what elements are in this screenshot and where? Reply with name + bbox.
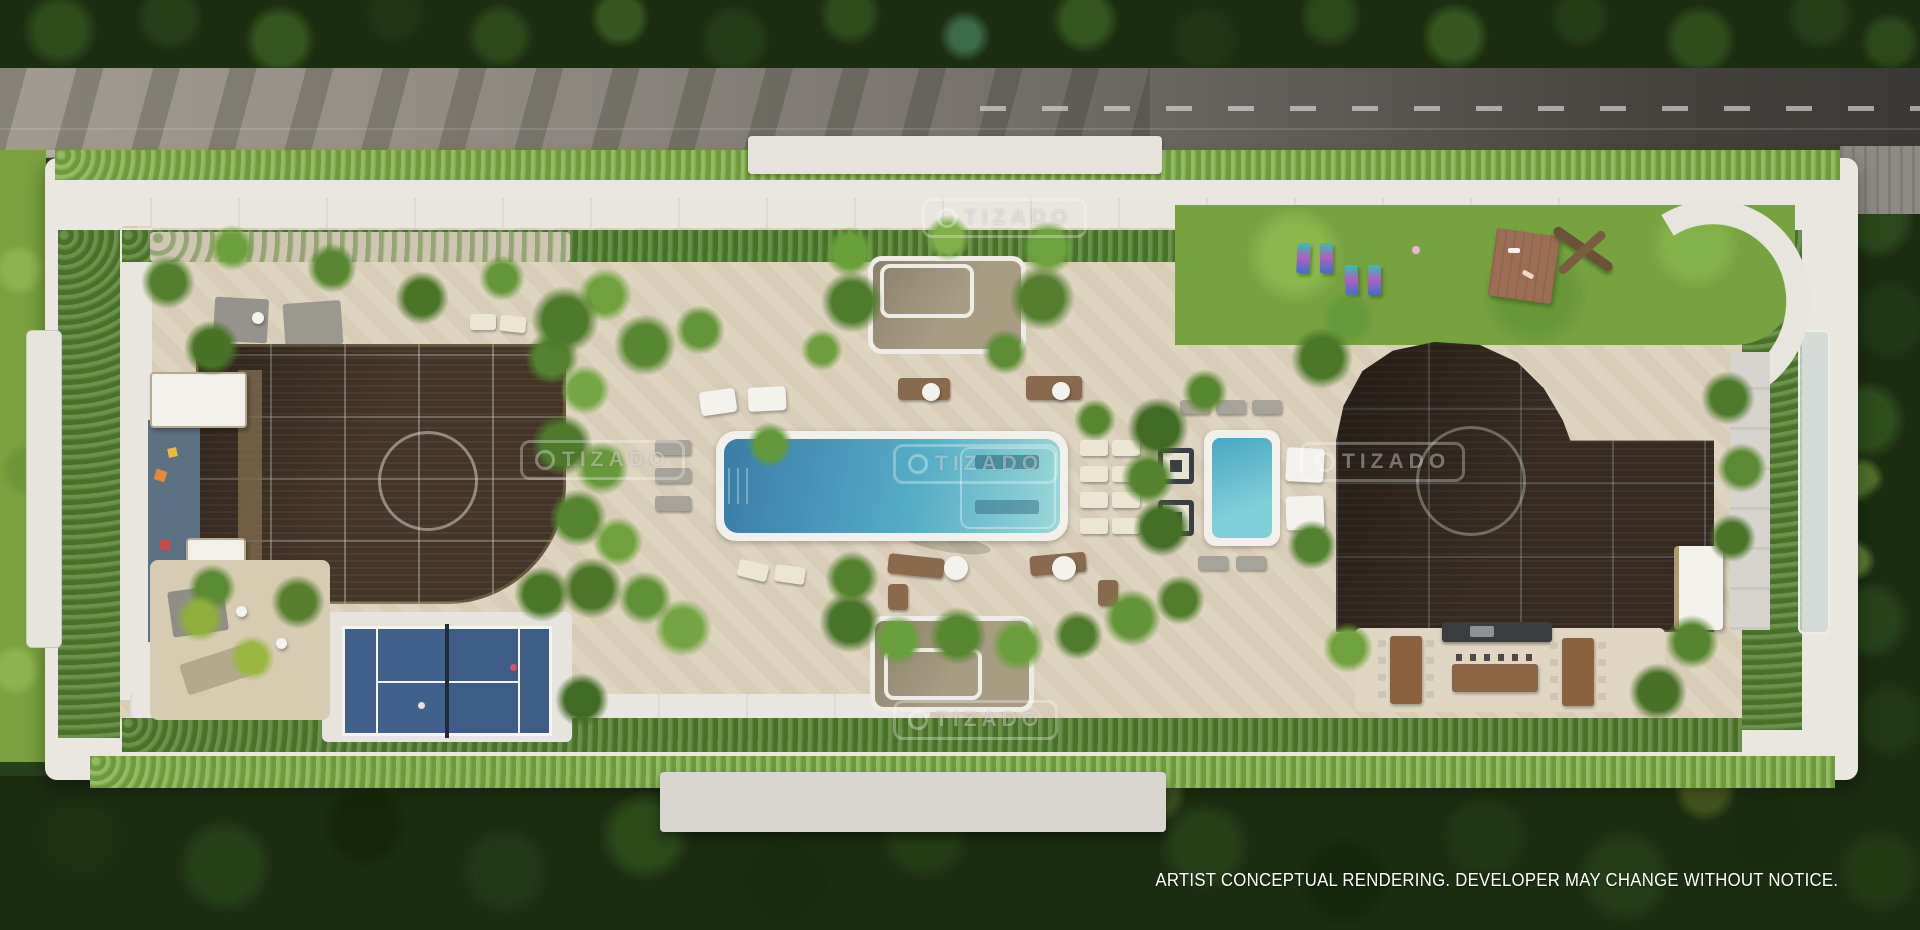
picnic-deck: [1488, 228, 1561, 304]
lounge-sofa: [888, 584, 908, 610]
bbq-counter: [1442, 622, 1552, 642]
road-lane-marking: [980, 106, 1920, 111]
walkway-left: [118, 228, 152, 700]
canopy-left-upper: [150, 372, 247, 428]
lounge-sofa: [1098, 580, 1118, 606]
lounger: [655, 496, 691, 511]
daybed: [1285, 495, 1324, 530]
balcony-tab-left: [26, 330, 62, 648]
rendering-canvas: TIZADO TIZADO TIZADO TIZADO TIZADO ARTIS…: [0, 0, 1920, 930]
lounger: [1198, 556, 1228, 570]
daybed: [699, 388, 738, 417]
lounger: [499, 315, 527, 334]
watermark-logo-icon: [937, 208, 957, 228]
pool-steps: [728, 468, 754, 504]
dining-chairs: [1378, 640, 1386, 702]
person-figure: [1508, 248, 1520, 253]
road-seam: [0, 128, 1920, 130]
framed-daybed: [1158, 448, 1194, 484]
in-pool-lounger: [975, 500, 1039, 514]
lounger: [1112, 466, 1140, 482]
person-figure: [1412, 246, 1420, 254]
player-figure: [510, 664, 517, 671]
round-daybed: [922, 383, 940, 401]
watermark-logo-icon: [908, 710, 928, 730]
dining-chairs: [1550, 642, 1558, 704]
watermark-logo-icon: [535, 450, 555, 470]
dining-table: [1390, 636, 1422, 704]
planter-row: [150, 232, 570, 262]
watermark-tizado: TIZADO: [893, 444, 1058, 484]
lounger: [1080, 492, 1108, 508]
lounger: [470, 314, 496, 330]
player-figure: [418, 702, 425, 709]
terrace-table: [236, 606, 247, 617]
yoga-mat: [1320, 243, 1333, 273]
daybed: [747, 386, 786, 412]
bbq-grill: [1470, 626, 1494, 637]
glass-balcony-right: [1798, 330, 1830, 634]
round-daybed: [944, 556, 968, 580]
watermark-logo-icon: [1315, 452, 1335, 472]
canopy-right: [1674, 546, 1723, 630]
gravel-terrace: [150, 560, 330, 720]
lounger: [1216, 400, 1246, 414]
lounger: [1080, 518, 1108, 534]
dining-chairs: [1426, 640, 1434, 702]
watermark-logo-icon: [908, 454, 928, 474]
round-daybed: [1052, 556, 1076, 580]
bar-table: [1452, 664, 1538, 692]
lounger: [1112, 492, 1140, 508]
terrace-table: [252, 312, 264, 324]
watermark-tizado: TIZADO: [1300, 442, 1465, 482]
watermark-tizado: TIZADO: [893, 700, 1058, 740]
dining-chairs: [1598, 642, 1606, 704]
watermark-text: TIZADO: [935, 452, 1043, 476]
garden-path-right: [1730, 352, 1770, 630]
watermark-tizado: TIZADO: [922, 198, 1087, 238]
pavilion-bottom-skylight: [884, 648, 982, 700]
play-equipment: [159, 539, 170, 550]
play-equipment: [167, 447, 178, 458]
spa-pool: [1212, 438, 1272, 538]
framed-daybed: [1158, 500, 1194, 536]
lounger: [1112, 440, 1140, 456]
bar-stools: [1456, 654, 1536, 661]
dining-table: [1562, 638, 1594, 706]
watermark-tizado: TIZADO: [520, 440, 685, 480]
watermark-text: TIZADO: [562, 448, 670, 472]
yoga-mat: [1368, 265, 1381, 295]
court-net: [445, 624, 449, 738]
watermark-text: TIZADO: [1342, 450, 1450, 474]
round-daybed: [1052, 382, 1070, 400]
skylight-ring-left: [378, 431, 478, 531]
terrace-table: [276, 638, 287, 649]
lounger: [1236, 556, 1266, 570]
lounger: [1112, 518, 1140, 534]
lounger: [1080, 466, 1108, 482]
pavilion-top-skylight: [880, 264, 974, 318]
hedge-inner-left: [58, 230, 120, 738]
watermark-text: TIZADO: [935, 708, 1043, 732]
lounger: [1252, 400, 1282, 414]
watermark-text: TIZADO: [964, 206, 1072, 230]
lounger: [1180, 400, 1210, 414]
lounge-rug: [167, 584, 229, 637]
parapet-tab-bottom: [660, 772, 1166, 832]
disclaimer-text: ARTIST CONCEPTUAL RENDERING. DEVELOPER M…: [1155, 870, 1838, 891]
yoga-mat: [1296, 243, 1311, 274]
lounger: [1080, 440, 1108, 456]
lounge-rug: [283, 300, 344, 348]
yoga-mat: [1344, 265, 1358, 295]
parapet-tab-top: [748, 136, 1162, 174]
